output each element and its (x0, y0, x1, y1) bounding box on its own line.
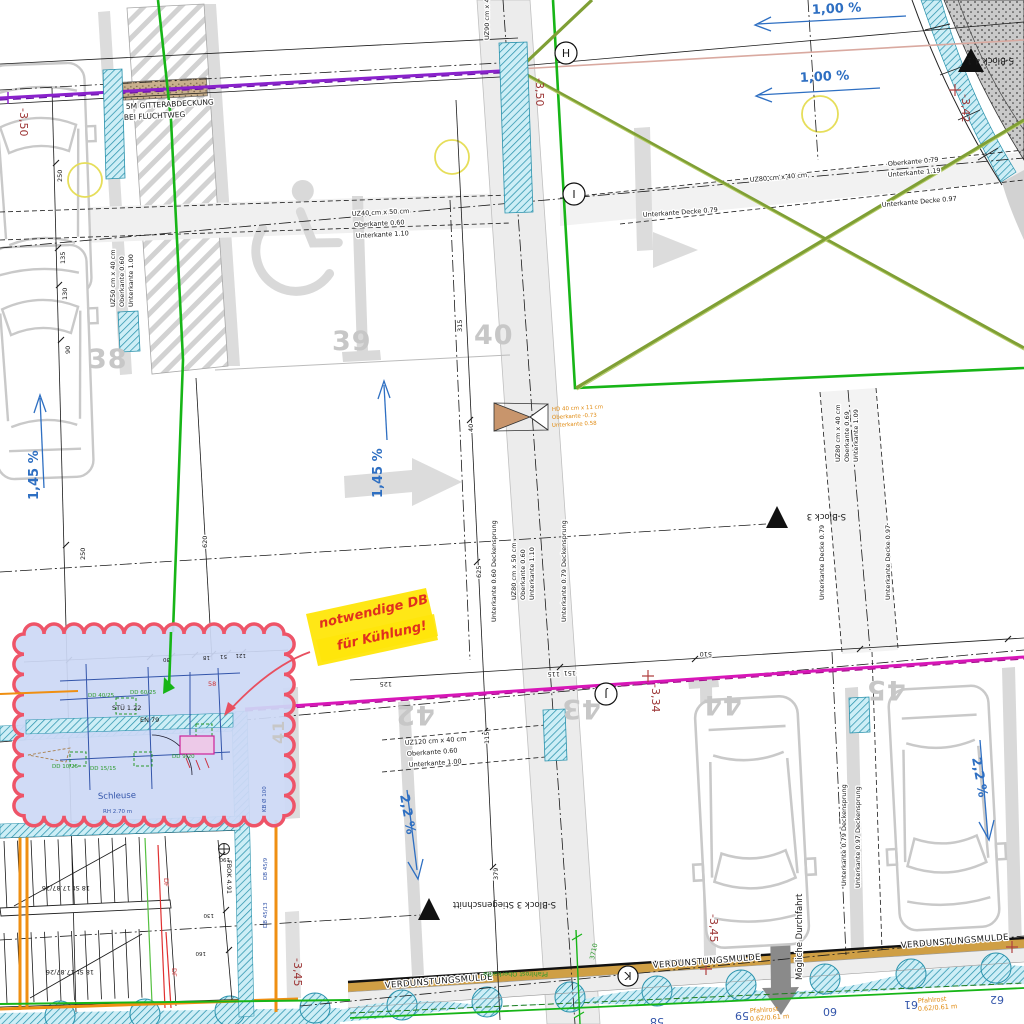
fbok-label: FBOK 4.91 (225, 860, 233, 894)
sblock3st-triangle (418, 898, 440, 920)
df-label-1: DF (162, 878, 170, 887)
handicap-icon (244, 176, 345, 298)
floor-plan-svg: 5M GITTERABDECKUNG BEI FLUCHTWEG 1,00 % … (0, 0, 1024, 1024)
dim-51: 51 (220, 653, 227, 659)
deckensprung-079b: Unterkante 0.79 Deckensprung (840, 784, 848, 886)
db-label-1: DB 45/9 (263, 857, 269, 880)
beam-uz80b-l2: Oberkante 0.60 (519, 549, 527, 600)
dim-115b: 115 (548, 670, 560, 678)
red-58: 58 (208, 680, 216, 688)
dim-40: 40 (467, 424, 475, 432)
pfahlrost-2b: 0.62/0.61 m (918, 1002, 958, 1013)
dim-90: 90 (64, 346, 72, 354)
hd-beam-l1: HD 40 cm x 11 cm (552, 404, 603, 413)
dim-151: 151 (564, 669, 576, 677)
stu-label: STÜ 1.22 (112, 703, 141, 712)
slope-label-145a: 1,45 % (27, 450, 42, 500)
dim-30: 30 (163, 656, 170, 662)
level-345-a: -3,45 (707, 914, 720, 942)
dim-160: 160 (195, 950, 206, 956)
dim-130b: 130 (203, 912, 214, 918)
cad-plan-viewport: 5M GITTERABDECKUNG BEI FLUCHTWEG 1,00 % … (0, 0, 1024, 1024)
schleuse-label: Schleuse (98, 791, 136, 802)
mulde-num-58: 58 (650, 1015, 664, 1024)
beam-uz120-l2: Oberkante 0.60 (407, 746, 458, 758)
sblock3st-label: S-Block 3 Stiegenschnitt (452, 899, 556, 909)
beam-uz120-l1: UZ120 cm x 40 cm (405, 735, 467, 747)
slope-label-145b: 1,45 % (371, 448, 386, 498)
beam-uz50-l1: UZ50 cm x 40 cm (109, 249, 117, 307)
dim-250b: 250 (79, 548, 87, 560)
kb-label: KB Ø 100 (261, 786, 268, 812)
slope-label-100a: 1,00 % (811, 0, 861, 18)
dim-18: 18 (203, 654, 210, 660)
sblock3-label: S-Block 3 (807, 511, 846, 521)
hd-beam-l3: Unterkante 0.58 (552, 421, 598, 429)
mulde-num-62: 62 (990, 993, 1004, 1006)
dd-9-20: DD 9/20 (172, 754, 195, 760)
pfahlrost-1b: 0.62/0.61 m (750, 1012, 790, 1023)
beam-uz80b-l3: Unterkante 1.10 (528, 547, 536, 600)
spot-42: 42 (395, 699, 435, 730)
dim-510: 510 (700, 650, 712, 658)
deckensprung-079: Unterkante 0.79 Deckensprung (560, 520, 568, 622)
dd-40-25: DD 40/25 (88, 693, 115, 699)
spot-43: 43 (561, 693, 601, 724)
df-label-2: DF (170, 968, 178, 977)
dim-379: 379 (492, 868, 500, 880)
pfahlrost-ok-label: Pfahlrost Oberkante (483, 970, 548, 978)
durchfahrt-label: Mögliche Durchfahrt (795, 893, 805, 980)
dim-620: 620 (201, 536, 209, 548)
dim-121: 121 (236, 652, 247, 658)
stair-treads-lower (4, 929, 142, 1003)
stair-steps-2: 18 St 17.87/26 (46, 968, 94, 976)
db-label-2: DB 45/13 (263, 902, 269, 928)
beam-uz90: UZ90 cm x 40 cm (483, 0, 491, 40)
level-334: -3,34 (649, 684, 662, 712)
dim-190: 190 (219, 856, 230, 862)
car-spot-45 (878, 684, 1009, 931)
spot-39: 39 (332, 326, 372, 357)
level-342: -3,42 (959, 94, 972, 122)
mulde-num-61: 61 (904, 998, 918, 1011)
dim-115a: 115 (483, 732, 491, 744)
ukdecke-097b: Unterkante Decke 0.97 (884, 525, 892, 600)
dd-60-25: DD 60/25 (130, 690, 157, 696)
mulde-num-60: 60 (823, 1005, 837, 1018)
level-350-center: -3,50 (533, 78, 546, 106)
spot-40: 40 (474, 320, 514, 351)
dd-10-25: DD 10/25 (52, 764, 79, 770)
en-label: EN 79 (140, 716, 159, 724)
grid-axis-k: K (624, 969, 632, 982)
deckensprung-097b: Unterkante 0.97 Deckensprung (854, 786, 862, 888)
mulde-num-59: 59 (735, 1009, 749, 1022)
beam-uz40-l3: Unterkante 1.10 (356, 229, 409, 240)
dim-250a: 250 (56, 170, 64, 182)
grid-axis-j: J (604, 687, 608, 700)
grid-axis-h: H (562, 47, 570, 60)
dim-125: 125 (380, 680, 392, 688)
spot-38: 38 (88, 344, 128, 375)
dim-315: 315 (456, 320, 464, 332)
beam-uz120-l3: Unterkante 1.00 (409, 757, 462, 769)
level-350-left: -3,50 (17, 108, 30, 136)
level-345-b: -3,45 (291, 958, 304, 986)
spot-44: 44 (702, 689, 742, 720)
spot-41: 41 (269, 720, 288, 744)
sblock3-triangle (766, 506, 788, 528)
beam-uz80b-l1: UZ80 cm x 50 cm (510, 542, 518, 600)
stair-steps-1: 18 St 17.87/26 (42, 884, 90, 892)
beam-uz80c-l1: UZ80 cm x 40 cm (834, 404, 842, 462)
beam-uz50-l3: Unterkante 1.00 (127, 254, 135, 307)
sblock41-label: S-Block 4.1 (967, 55, 1014, 65)
dim-625: 625 (475, 566, 483, 578)
beam-uz50-l2: Oberkante 0.60 (118, 256, 126, 307)
beam-uz80c-l3: Unterkante 1.09 (852, 409, 860, 462)
hd-beam-l2: Oberkante -0.73 (552, 413, 598, 421)
grid-axis-i: I (572, 188, 575, 201)
ukdecke-079b: Unterkante Decke 0.79 (818, 525, 826, 600)
rh-label: RH 2.70 m (103, 809, 132, 815)
highlighted-unit (180, 736, 214, 754)
dim-135: 135 (59, 252, 67, 264)
dim-130: 130 (61, 288, 69, 300)
beam-uz80c-l2: Oberkante 0.69 (843, 411, 851, 462)
deckensprung-060: Unterkante 0.60 Deckensprung (490, 520, 498, 622)
dd-15-15: DD 15/15 (90, 766, 117, 772)
spot-45: 45 (866, 674, 906, 705)
slope-label-100b: 1,00 % (799, 68, 849, 86)
